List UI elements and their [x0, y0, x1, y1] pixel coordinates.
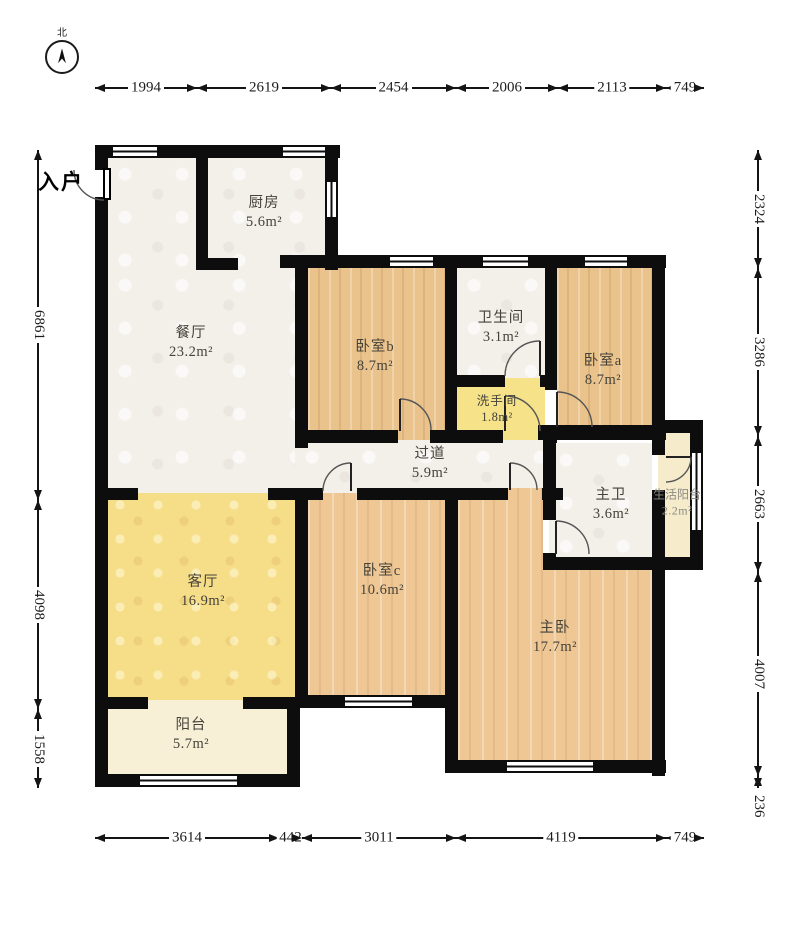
service-balcony-door-arc	[666, 457, 691, 482]
compass-icon	[45, 40, 79, 74]
bedroom-b-door-arc	[400, 399, 431, 430]
room-label-balcony: 阳台 5.7m²	[173, 716, 209, 754]
room-label-corridor: 过道 5.9m²	[412, 445, 448, 483]
master-bedroom-door-arc	[510, 463, 537, 490]
master-bath-door-arc	[556, 521, 589, 554]
room-label-service-balcony: 生活阳台 2.2m²	[653, 487, 701, 518]
room-label-living: 客厅 16.9m²	[181, 573, 225, 611]
door-swings	[0, 0, 796, 927]
compass-north-label: 北	[44, 29, 80, 39]
room-label-bedroom-a: 卧室a 8.7m²	[584, 352, 622, 390]
room-label-bedroom-c: 卧室c 10.6m²	[360, 562, 404, 600]
room-label-bathroom: 卫生间 3.1m²	[478, 309, 525, 347]
room-label-master-bath: 主卫 3.6m²	[593, 486, 629, 524]
compass-needle-icon	[51, 46, 73, 68]
entrance-label: 入户	[38, 166, 84, 196]
floorplan: 厨房 5.6m² 餐厅 23.2m² 卧室b 8.7m² 卫生间 3.1m² 卧…	[0, 0, 796, 927]
bedroom-c-door-arc	[323, 463, 351, 491]
compass: 北	[44, 29, 80, 74]
room-label-washroom: 洗手间 1.8m²	[477, 393, 518, 426]
room-label-kitchen: 厨房 5.6m²	[246, 194, 282, 232]
room-label-dining: 餐厅 23.2m²	[169, 324, 213, 362]
room-label-master-bedroom: 主卧 17.7m²	[533, 619, 577, 657]
room-label-bedroom-b: 卧室b 8.7m²	[355, 338, 394, 376]
bedroom-a-door-arc	[557, 392, 592, 427]
